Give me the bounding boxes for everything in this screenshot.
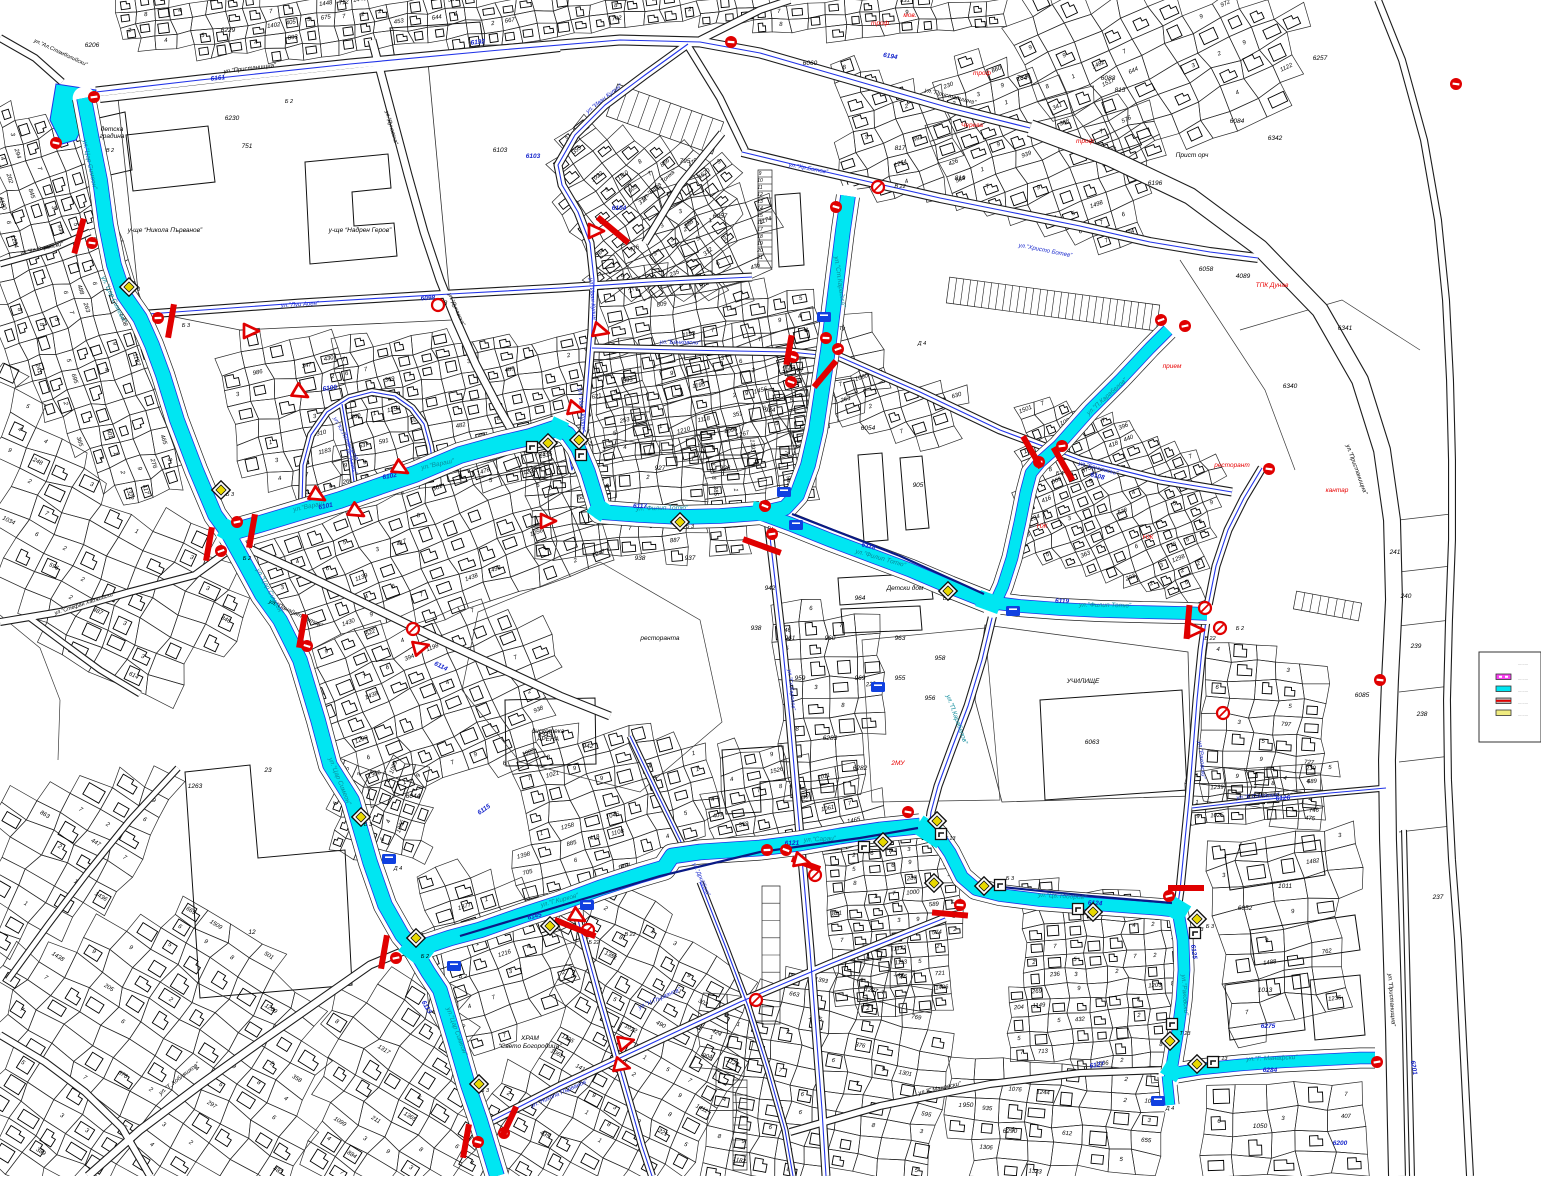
svg-text:230: 230 xyxy=(1305,766,1317,773)
svg-text:6340: 6340 xyxy=(1283,383,1298,390)
svg-text:797: 797 xyxy=(1281,722,1292,729)
svg-text:1011: 1011 xyxy=(1278,883,1292,890)
svg-text:В 22: В 22 xyxy=(624,932,635,938)
svg-text:16: 16 xyxy=(757,220,763,226)
svg-text:18: 18 xyxy=(757,234,763,240)
svg-text:Б 3: Б 3 xyxy=(182,323,191,329)
svg-text:17: 17 xyxy=(757,227,763,233)
svg-text:6104: 6104 xyxy=(612,205,627,212)
svg-text:942: 942 xyxy=(765,585,776,592)
svg-text:1486: 1486 xyxy=(935,984,949,991)
svg-text:795: 795 xyxy=(680,158,691,165)
svg-text:237: 237 xyxy=(1432,894,1444,901)
svg-text:6085: 6085 xyxy=(1355,692,1370,699)
svg-text:385: 385 xyxy=(712,486,719,497)
svg-text:955: 955 xyxy=(895,675,906,682)
svg-text:6060: 6060 xyxy=(803,60,818,67)
svg-text:1113: 1113 xyxy=(894,959,908,966)
svg-text:942: 942 xyxy=(583,743,594,750)
svg-text:1013: 1013 xyxy=(1258,987,1273,994)
svg-text:938: 938 xyxy=(635,555,646,562)
svg-text:19: 19 xyxy=(757,241,763,247)
svg-text:1393: 1393 xyxy=(748,439,755,453)
svg-text:Т 23: Т 23 xyxy=(1179,1031,1191,1037)
svg-text:1050: 1050 xyxy=(1253,1123,1268,1130)
svg-text:.........: ......... xyxy=(1518,676,1528,681)
svg-text:.........: ......... xyxy=(1518,688,1528,693)
svg-text:927: 927 xyxy=(655,465,666,472)
svg-text:11: 11 xyxy=(757,185,762,191)
svg-text:“Свето Богородица”: “Свето Богородица” xyxy=(498,1042,562,1050)
svg-text:Б 3: Б 3 xyxy=(1006,876,1015,882)
svg-text:6282: 6282 xyxy=(853,765,868,772)
svg-text:6103: 6103 xyxy=(493,147,508,154)
svg-text:746: 746 xyxy=(1309,808,1320,815)
svg-text:819: 819 xyxy=(955,175,966,182)
svg-text:6057: 6057 xyxy=(713,213,728,220)
svg-text:1203: 1203 xyxy=(1148,982,1162,989)
svg-text:6063: 6063 xyxy=(1085,739,1100,746)
svg-text:ул.”Филип Тотю”: ул.”Филип Тотю” xyxy=(1078,602,1132,610)
svg-text:969: 969 xyxy=(855,675,866,682)
svg-text:ресторанта: ресторанта xyxy=(639,635,680,642)
svg-text:ресторант: ресторант xyxy=(1213,462,1250,469)
svg-text:6275: 6275 xyxy=(1261,1023,1276,1030)
svg-text:612: 612 xyxy=(1062,1131,1073,1138)
svg-text:1239: 1239 xyxy=(1210,785,1224,792)
svg-text:935: 935 xyxy=(982,1106,993,1113)
svg-text:1149: 1149 xyxy=(1032,1003,1046,1010)
svg-text:269: 269 xyxy=(1031,989,1043,996)
svg-text:Б 22: Б 22 xyxy=(588,940,599,946)
svg-text:937: 937 xyxy=(685,555,696,562)
svg-text:9: 9 xyxy=(759,171,762,177)
svg-text:Б 2: Б 2 xyxy=(421,954,429,960)
svg-text:НЖ: НЖ xyxy=(1037,523,1049,530)
svg-text:15: 15 xyxy=(757,213,763,219)
svg-text:ТПК Дунав: ТПК Дунав xyxy=(1256,282,1289,289)
svg-text:926: 926 xyxy=(720,465,731,472)
svg-text:Д 4: Д 4 xyxy=(1165,1106,1174,1112)
svg-text:6229: 6229 xyxy=(221,27,236,34)
svg-text:1025: 1025 xyxy=(1210,813,1224,820)
svg-text:В 2: В 2 xyxy=(106,148,114,154)
svg-text:6283: 6283 xyxy=(823,735,838,742)
svg-text:721: 721 xyxy=(935,971,946,978)
svg-text:239: 239 xyxy=(1410,643,1422,650)
svg-text:432: 432 xyxy=(1075,1017,1086,1024)
svg-text:6126: 6126 xyxy=(1275,794,1290,802)
svg-text:дискотека: дискотека xyxy=(532,727,565,735)
svg-text:963: 963 xyxy=(895,635,906,642)
svg-text:6084: 6084 xyxy=(1230,118,1245,125)
svg-text:10: 10 xyxy=(757,178,763,184)
svg-text:905: 905 xyxy=(913,482,924,489)
svg-text:964: 964 xyxy=(855,595,866,602)
svg-text:6230: 6230 xyxy=(225,115,240,122)
svg-text:934: 934 xyxy=(765,407,776,414)
svg-text:Д 4: Д 4 xyxy=(393,866,402,872)
svg-text:1172: 1172 xyxy=(893,945,907,952)
svg-text:6257: 6257 xyxy=(1313,55,1328,62)
svg-text:6196: 6196 xyxy=(1148,180,1163,187)
svg-text:В 22: В 22 xyxy=(1204,636,1215,642)
svg-text:Д 4: Д 4 xyxy=(917,341,926,347)
svg-text:Б 3: Б 3 xyxy=(889,848,898,854)
svg-text:238: 238 xyxy=(1416,711,1428,718)
svg-text:Б 3: Б 3 xyxy=(1206,924,1215,930)
svg-text:6044: 6044 xyxy=(406,793,421,800)
svg-text:АРЕНА: АРЕНА xyxy=(536,736,559,743)
svg-text:589: 589 xyxy=(1307,779,1318,786)
svg-text:960: 960 xyxy=(825,635,836,642)
svg-text:764: 764 xyxy=(1017,75,1028,82)
svg-text:950: 950 xyxy=(963,1102,974,1109)
svg-text:23: 23 xyxy=(263,767,272,774)
svg-text:.........: ......... xyxy=(1518,661,1528,666)
svg-text:6117: 6117 xyxy=(633,503,647,510)
svg-text:Б 1: Б 1 xyxy=(1056,471,1064,477)
svg-text:6341: 6341 xyxy=(1338,325,1353,332)
svg-text:407: 407 xyxy=(1341,1114,1352,1120)
svg-text:1: 1 xyxy=(958,1103,962,1109)
svg-text:815: 815 xyxy=(1115,87,1126,94)
svg-text:.........: ......... xyxy=(1518,712,1528,717)
svg-text:6290: 6290 xyxy=(1003,1128,1018,1135)
svg-text:1323: 1323 xyxy=(1028,1168,1042,1175)
svg-text:6342: 6342 xyxy=(1268,135,1283,142)
svg-text:Б 2: Б 2 xyxy=(1236,626,1244,632)
svg-text:В 22: В 22 xyxy=(894,184,905,190)
svg-text:204: 204 xyxy=(1013,1005,1025,1012)
svg-text:градина: градина xyxy=(100,132,125,140)
svg-text:кантар: кантар xyxy=(1326,487,1349,494)
svg-text:887: 887 xyxy=(670,538,681,545)
svg-text:20: 20 xyxy=(756,248,763,254)
svg-text:6054: 6054 xyxy=(861,425,876,432)
svg-text:6058: 6058 xyxy=(1199,266,1214,273)
svg-text:475: 475 xyxy=(1305,816,1316,823)
svg-text:УЧИЛИЩЕ: УЧИЛИЩЕ xyxy=(1066,678,1100,685)
svg-text:мов.: мов. xyxy=(903,12,916,19)
svg-text:Б 2: Б 2 xyxy=(459,974,467,980)
svg-text:детска: детска xyxy=(101,125,124,133)
svg-text:6200: 6200 xyxy=(1333,1140,1348,1147)
svg-text:6083: 6083 xyxy=(1101,75,1116,82)
svg-text:241: 241 xyxy=(1389,549,1401,556)
svg-text:240: 240 xyxy=(1400,593,1412,600)
svg-text:1244: 1244 xyxy=(1036,1089,1050,1096)
svg-text:Прист орч: Прист орч xyxy=(1176,152,1209,159)
svg-text:6284: 6284 xyxy=(1263,1067,1278,1074)
svg-text:Детски дом: Детски дом xyxy=(886,584,924,592)
svg-text:прием: прием xyxy=(1163,363,1182,370)
svg-text:287: 287 xyxy=(906,876,918,883)
svg-text:троф: троф xyxy=(871,20,890,27)
svg-text:959: 959 xyxy=(795,675,806,682)
svg-text:у-ще “Надрен Геров”: у-ще “Надрен Геров” xyxy=(328,226,393,234)
svg-text:4089: 4089 xyxy=(1236,273,1251,280)
svg-text:Б 2: Б 2 xyxy=(285,99,293,105)
svg-text:12: 12 xyxy=(248,929,256,936)
svg-text:574: 574 xyxy=(932,930,943,937)
svg-text:Черева: Черева xyxy=(961,122,983,129)
svg-text:713: 713 xyxy=(1038,1049,1049,1056)
svg-text:938: 938 xyxy=(751,625,762,632)
svg-text:14: 14 xyxy=(757,206,763,212)
svg-text:ХРАМ: ХРАМ xyxy=(520,1035,539,1042)
svg-text:1: 1 xyxy=(732,488,738,492)
svg-text:6206: 6206 xyxy=(85,42,100,49)
svg-text:1306: 1306 xyxy=(979,1144,993,1151)
svg-text:961: 961 xyxy=(785,635,796,642)
svg-text:троф: троф xyxy=(1076,138,1095,145)
svg-text:236: 236 xyxy=(1049,972,1061,979)
svg-text:6052: 6052 xyxy=(1238,905,1253,912)
svg-text:751: 751 xyxy=(242,143,253,150)
svg-text:821: 821 xyxy=(832,911,843,918)
svg-text:1263: 1263 xyxy=(188,783,203,790)
svg-text:6103: 6103 xyxy=(526,153,541,160)
svg-text:.........: ......... xyxy=(1518,700,1528,705)
svg-text:Б 2: Б 2 xyxy=(243,556,251,562)
svg-text:1000: 1000 xyxy=(906,889,920,896)
svg-text:НЖ: НЖ xyxy=(1143,534,1155,541)
svg-text:956: 956 xyxy=(925,695,936,702)
svg-text:2МУ: 2МУ xyxy=(890,760,905,767)
svg-text:13: 13 xyxy=(757,199,763,205)
svg-text:6119: 6119 xyxy=(1055,598,1070,605)
svg-text:у-ще “Никола Първанов”: у-ще “Никола Първанов” xyxy=(127,227,203,234)
svg-text:троф: троф xyxy=(973,70,992,77)
svg-text:958: 958 xyxy=(935,655,946,662)
svg-text:655: 655 xyxy=(1141,1138,1152,1145)
svg-text:589: 589 xyxy=(929,902,940,909)
svg-text:1076: 1076 xyxy=(1008,1086,1022,1093)
svg-text:21: 21 xyxy=(756,255,763,261)
svg-text:817: 817 xyxy=(895,145,906,152)
svg-text:12: 12 xyxy=(757,192,763,198)
svg-text:ул.”Бенковски”: ул.”Бенковски” xyxy=(659,340,702,347)
